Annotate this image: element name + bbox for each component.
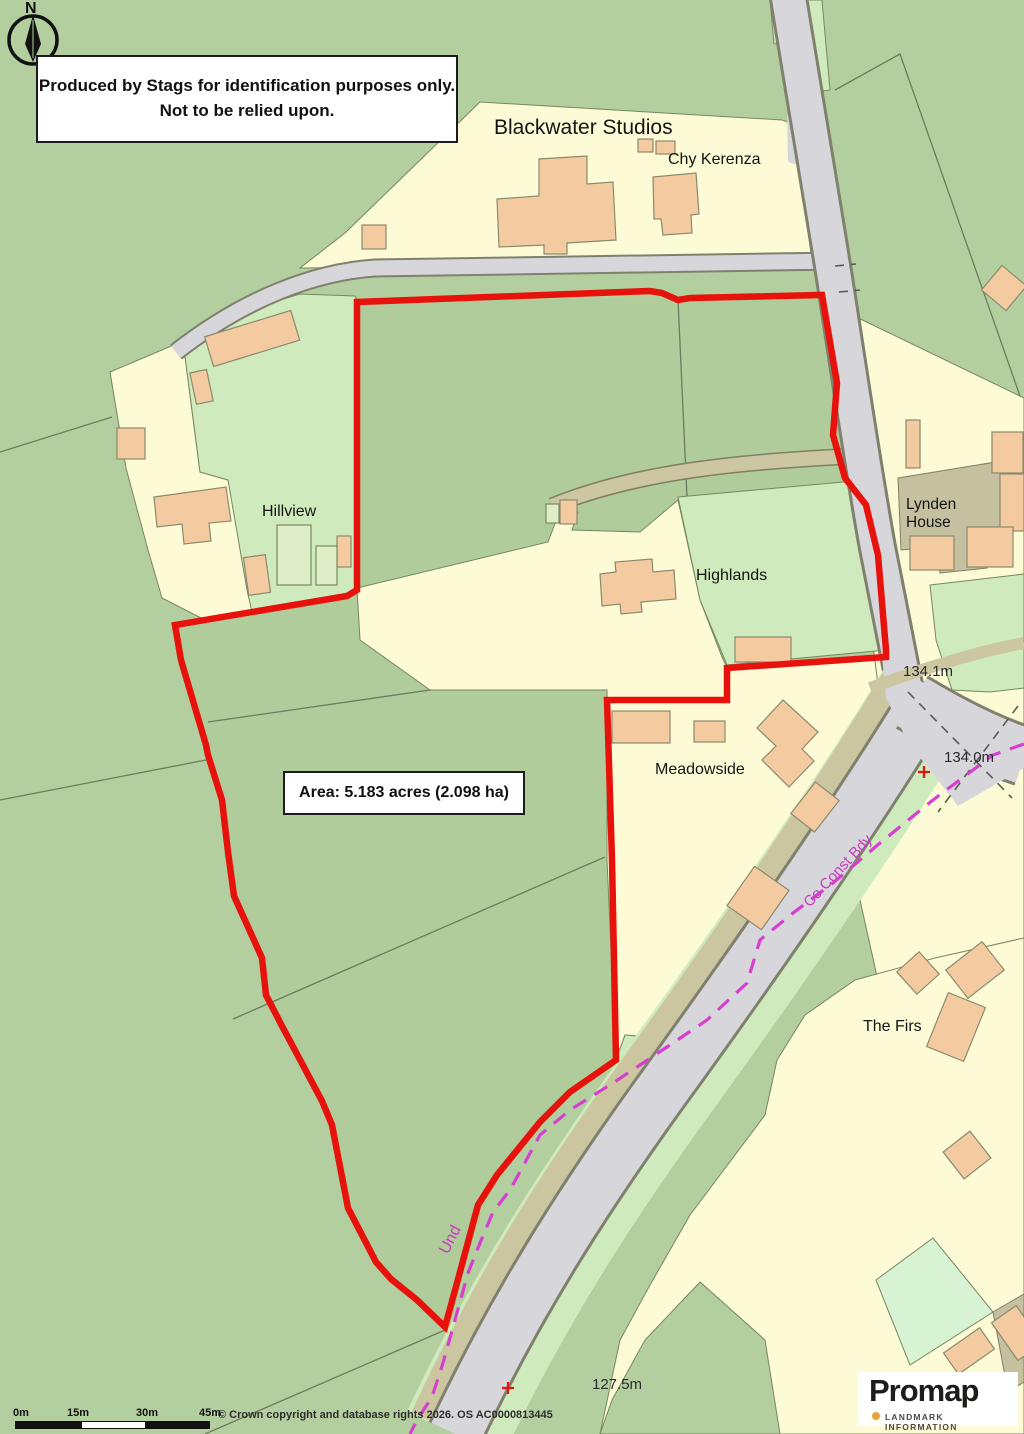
label-lynden-house: Lynden House [906,496,956,532]
spot-height-134-1: 134.1m [903,663,953,680]
disclaimer-line2: Not to be relied upon. [39,99,455,124]
promap-tagline: LANDMARK INFORMATION [885,1412,1018,1432]
copyright-text: © Crown copyright and database rights 20… [218,1409,553,1421]
promap-wordmark: Promap [869,1373,978,1409]
spot-height-134-0: 134.0m [944,749,994,766]
label-blackwater-studios: Blackwater Studios [494,116,673,140]
north-arrow-label: N [25,0,37,18]
label-hillview: Hillview [262,503,316,521]
map-graphic [0,0,1024,1434]
scale-bar-segment [15,1421,81,1429]
spot-height-127-5: 127.5m [592,1376,642,1393]
label-highlands: Highlands [696,567,767,585]
disclaimer-line1: Produced by Stags for identification pur… [39,74,455,99]
area-box: Area: 5.183 acres (2.098 ha) [283,771,525,815]
promap-dot-icon [872,1412,880,1420]
scale-15m: 15m [67,1407,89,1419]
disclaimer-box: Produced by Stags for identification pur… [36,55,458,143]
map-canvas: N Produced by Stags for identification p… [0,0,1024,1434]
label-the-firs: The Firs [863,1018,922,1036]
label-chy-kerenza: Chy Kerenza [668,151,761,169]
promap-logo: Promap LANDMARK INFORMATION [858,1372,1018,1426]
label-meadowside: Meadowside [655,761,745,779]
scale-bar-segment [146,1421,210,1429]
scale-30m: 30m [136,1407,158,1419]
scale-bar-segment [81,1421,146,1429]
scale-0m: 0m [13,1407,29,1419]
area-label: Area: 5.183 acres (2.098 ha) [299,784,509,802]
